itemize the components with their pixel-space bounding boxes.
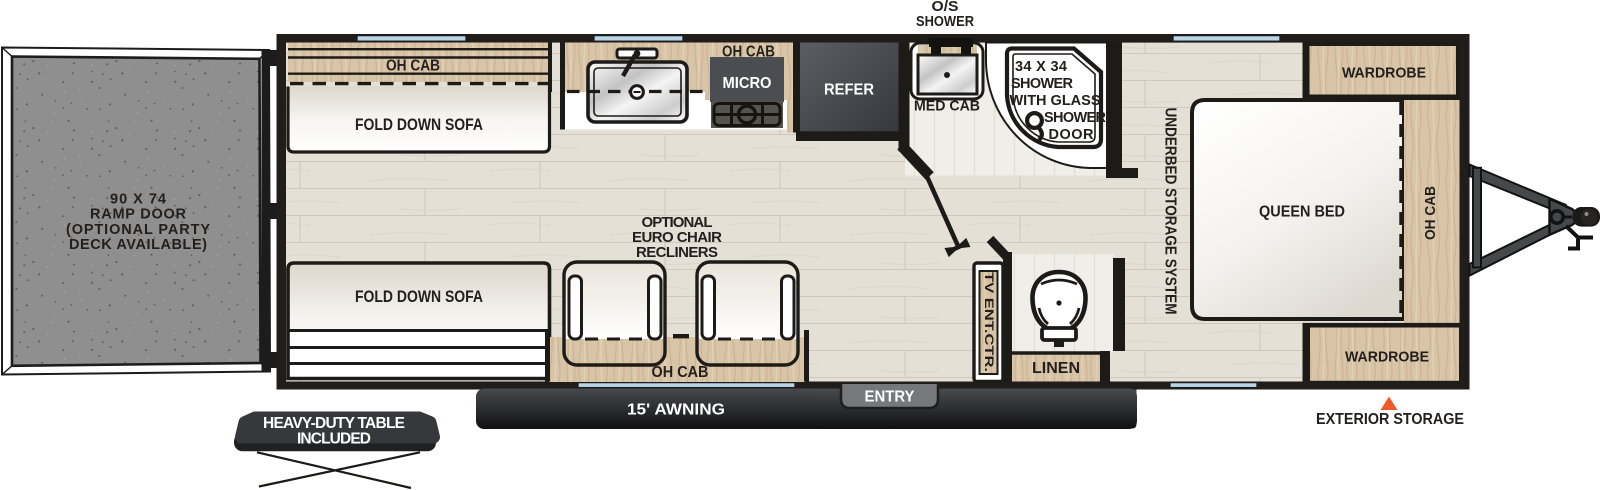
svg-text:LINEN: LINEN <box>1032 360 1080 377</box>
svg-text:DOOR: DOOR <box>1049 127 1095 143</box>
svg-text:90 X 74: 90 X 74 <box>110 192 166 208</box>
svg-text:(OPTIONAL PARTY: (OPTIONAL PARTY <box>66 222 210 238</box>
svg-text:FOLD DOWN SOFA: FOLD DOWN SOFA <box>355 288 483 306</box>
svg-text:MICRO: MICRO <box>723 75 772 92</box>
svg-text:OH CAB: OH CAB <box>1422 186 1439 240</box>
svg-text:SHOWER: SHOWER <box>1011 76 1074 92</box>
svg-text:FOLD DOWN SOFA: FOLD DOWN SOFA <box>355 116 483 134</box>
svg-text:SHOWER: SHOWER <box>916 14 974 30</box>
svg-text:O/S: O/S <box>932 0 959 15</box>
svg-text:EXTERIOR STORAGE: EXTERIOR STORAGE <box>1316 411 1464 428</box>
svg-text:INCLUDED: INCLUDED <box>297 431 371 448</box>
svg-text:OH CAB: OH CAB <box>386 58 440 75</box>
svg-text:15' AWNING: 15' AWNING <box>627 402 725 419</box>
svg-text:OH CAB: OH CAB <box>652 364 709 381</box>
svg-text:MED CAB: MED CAB <box>914 99 980 115</box>
svg-text:DECK AVAILABLE): DECK AVAILABLE) <box>69 237 207 253</box>
svg-text:HEAVY-DUTY TABLE: HEAVY-DUTY TABLE <box>263 415 405 432</box>
svg-text:ENTRY: ENTRY <box>865 389 915 406</box>
svg-text:RECLINERS: RECLINERS <box>636 244 718 261</box>
svg-text:UNDERBED STORAGE SYSTEM: UNDERBED STORAGE SYSTEM <box>1162 108 1179 315</box>
svg-text:REFER: REFER <box>824 82 874 99</box>
svg-text:WARDROBE: WARDROBE <box>1342 65 1426 82</box>
svg-text:WITH GLASS: WITH GLASS <box>1010 93 1101 109</box>
svg-text:34 X 34: 34 X 34 <box>1015 59 1067 75</box>
svg-text:SHOWER: SHOWER <box>1044 110 1107 126</box>
svg-text:WARDROBE: WARDROBE <box>1345 349 1429 366</box>
svg-text:QUEEN BED: QUEEN BED <box>1259 204 1345 221</box>
svg-text:RAMP DOOR: RAMP DOOR <box>90 207 187 223</box>
svg-text:TV ENT.CTR.: TV ENT.CTR. <box>982 272 994 372</box>
